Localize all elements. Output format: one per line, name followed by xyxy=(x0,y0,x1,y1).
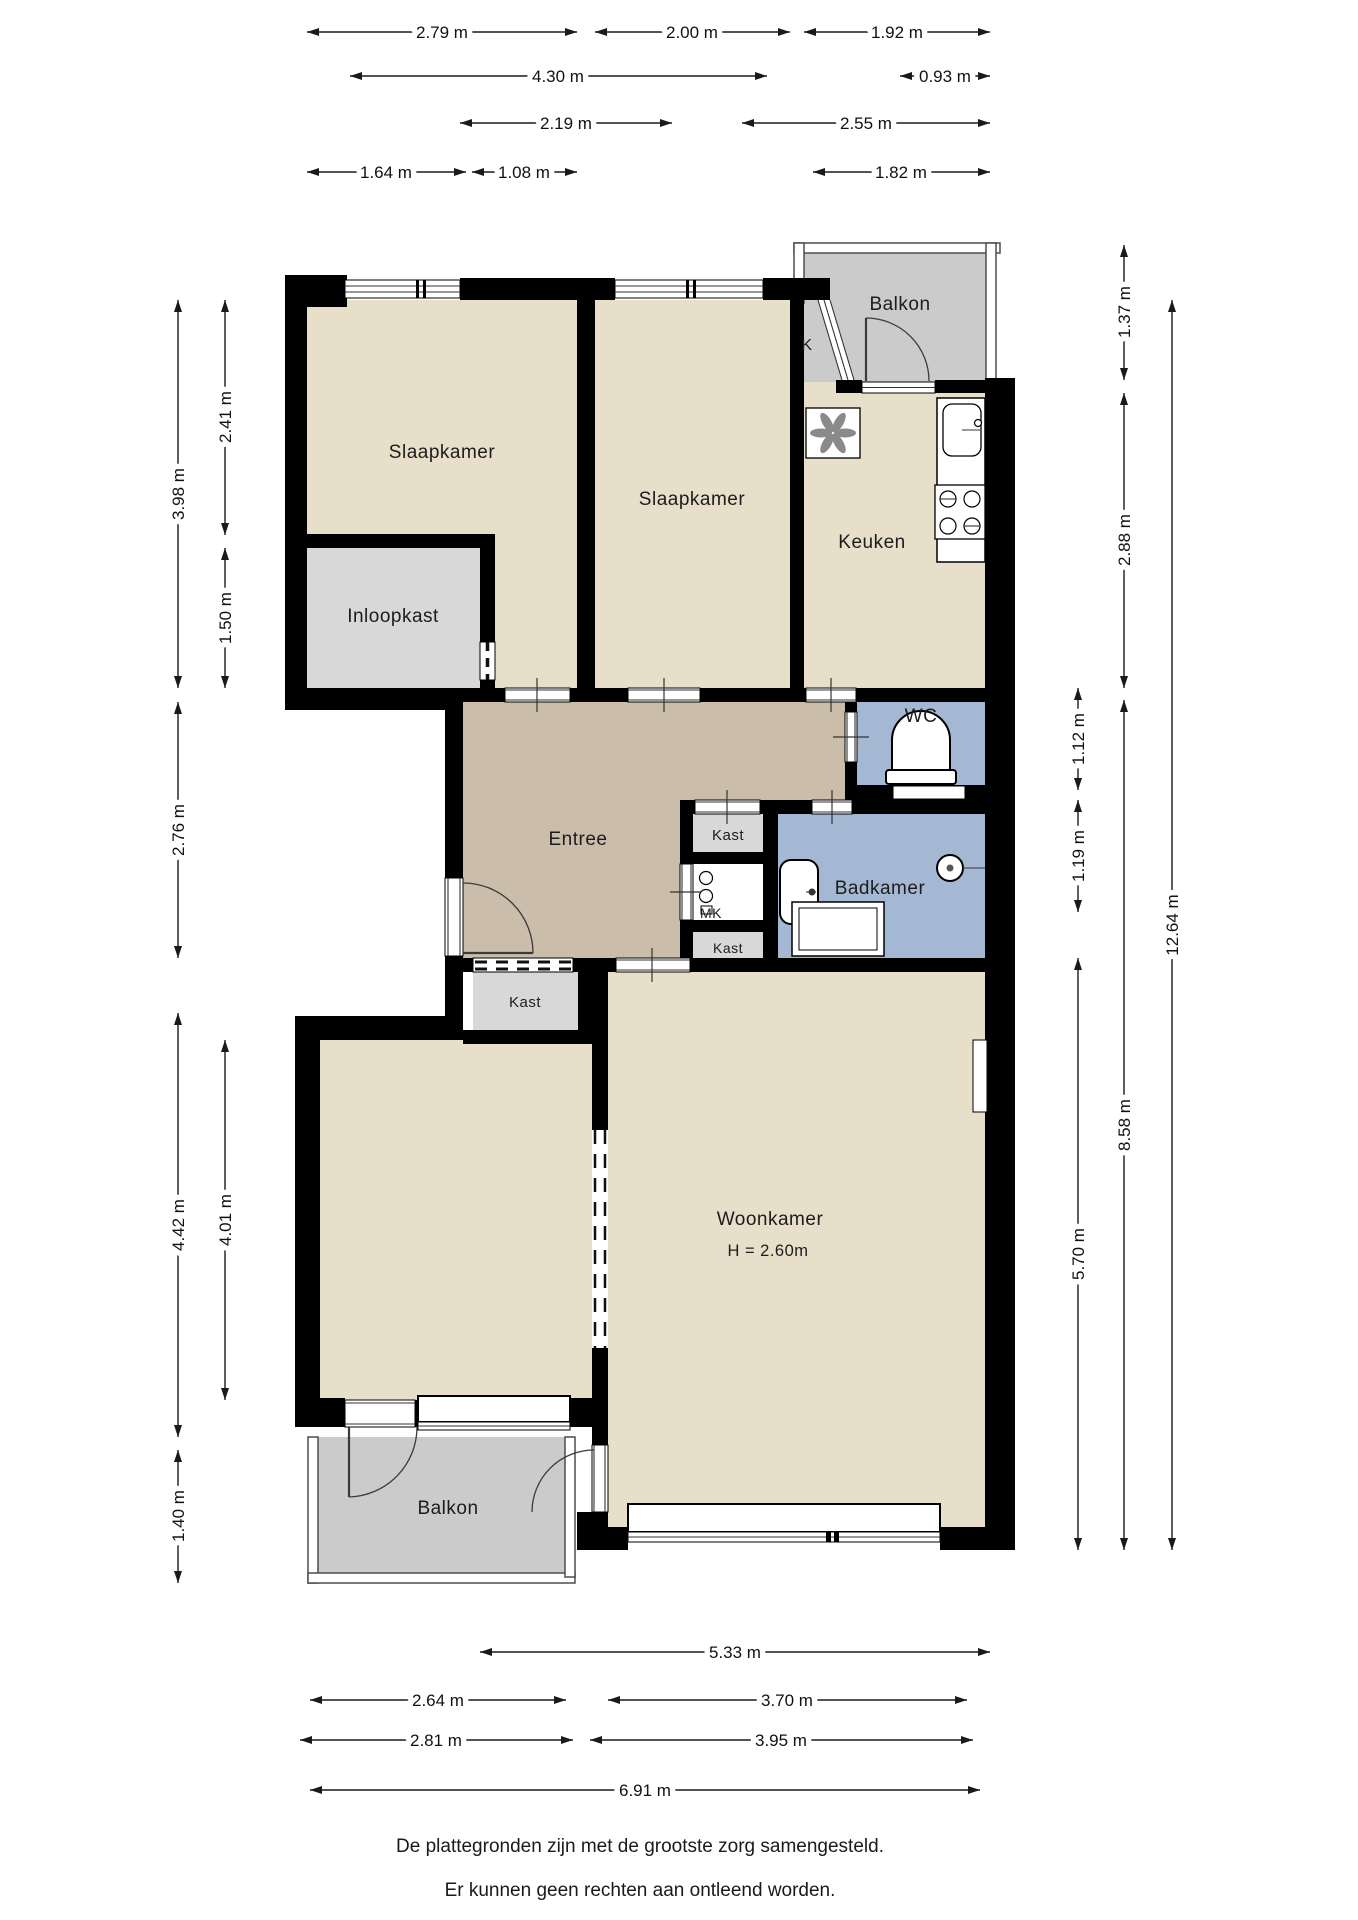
dim: 1.40 m xyxy=(169,1450,188,1583)
label-mk: MK xyxy=(700,905,722,921)
opening-kast-left xyxy=(473,958,573,972)
wall xyxy=(592,1348,608,1445)
label-badkamer: Badkamer xyxy=(835,878,926,899)
wall xyxy=(700,688,806,702)
balcony-wall xyxy=(308,1437,318,1583)
balcony-wall xyxy=(308,1573,575,1583)
svg-text:3.95 m: 3.95 m xyxy=(755,1731,807,1750)
svg-text:2.41 m: 2.41 m xyxy=(216,391,235,443)
svg-text:2.79 m: 2.79 m xyxy=(416,23,468,42)
balcony-wall xyxy=(794,243,1000,253)
svg-text:1.50 m: 1.50 m xyxy=(216,592,235,644)
balcony-wall xyxy=(986,243,996,393)
label-woonkamer: Woonkamer xyxy=(717,1209,824,1230)
dim: 1.08 m xyxy=(472,163,577,182)
room-sideroom xyxy=(320,1040,592,1400)
dim: 6.91 m xyxy=(310,1781,980,1800)
wall xyxy=(836,380,862,393)
svg-text:8.58 m: 8.58 m xyxy=(1115,1099,1134,1151)
window-balcony-top xyxy=(862,382,935,393)
label-slaapkamer2: Slaapkamer xyxy=(639,489,746,510)
dim: 1.19 m xyxy=(1069,800,1088,912)
wall-niche xyxy=(973,1040,987,1112)
dimensions-right: 1.37 m 2.88 m 1.12 m 1.19 m 8.58 m 5.70 … xyxy=(1069,245,1182,1550)
svg-text:1.82 m: 1.82 m xyxy=(875,163,927,182)
label-woonkamer-height: H = 2.60m xyxy=(727,1242,808,1260)
wall xyxy=(852,800,985,814)
wall xyxy=(608,958,616,972)
dim: 4.30 m xyxy=(350,67,767,86)
svg-text:2.55 m: 2.55 m xyxy=(840,114,892,133)
footer-line2: Er kunnen geen rechten aan ontleend word… xyxy=(445,1880,836,1901)
wall xyxy=(985,378,1015,1550)
dim: 5.70 m xyxy=(1069,958,1088,1550)
wall xyxy=(460,278,615,300)
opening-inloopkast xyxy=(480,642,495,680)
dimensions-top: 2.79 m 2.00 m 1.92 m 4.30 m 0.93 m 2.19 … xyxy=(307,23,990,182)
wall xyxy=(570,688,628,702)
svg-text:2.19 m: 2.19 m xyxy=(540,114,592,133)
dim: 12.64 m xyxy=(1163,300,1182,1550)
dim: 0.93 m xyxy=(900,67,990,86)
kitchen-counter xyxy=(935,398,985,562)
dim: 1.12 m xyxy=(1069,688,1088,790)
room-entree-b xyxy=(463,800,680,958)
stove xyxy=(935,485,985,539)
wall xyxy=(693,852,763,864)
svg-text:1.40 m: 1.40 m xyxy=(169,1490,188,1542)
svg-text:1.37 m: 1.37 m xyxy=(1115,286,1134,338)
wall xyxy=(763,800,778,958)
wall xyxy=(763,278,830,300)
wall xyxy=(845,702,857,712)
svg-text:4.01 m: 4.01 m xyxy=(216,1194,235,1246)
dim: 3.98 m xyxy=(169,300,188,688)
dim: 1.82 m xyxy=(813,163,990,182)
label-balkon-top: Balkon xyxy=(869,294,930,315)
svg-text:2.81 m: 2.81 m xyxy=(410,1731,462,1750)
dim: 1.64 m xyxy=(307,163,466,182)
wc-niche xyxy=(893,786,965,799)
window-slaapkamer1 xyxy=(345,280,460,298)
sink-tap xyxy=(975,420,982,427)
svg-text:1.64 m: 1.64 m xyxy=(360,163,412,182)
wall xyxy=(285,688,463,710)
footer: De plattegronden zijn met de grootste zo… xyxy=(396,1836,884,1901)
svg-text:2.64 m: 2.64 m xyxy=(412,1691,464,1710)
label-kast-bottom: Kast xyxy=(713,940,743,956)
room-entree-a xyxy=(463,702,845,800)
wall xyxy=(295,1398,345,1427)
label-entree: Entree xyxy=(549,829,608,850)
wall xyxy=(480,680,495,688)
label-kast-left: Kast xyxy=(509,994,541,1011)
label-slaapkamer1: Slaapkamer xyxy=(389,442,496,463)
wall xyxy=(680,800,695,814)
dim: 1.92 m xyxy=(804,23,990,42)
dim: 3.95 m xyxy=(590,1731,973,1750)
footer-line1: De plattegronden zijn met de grootste zo… xyxy=(396,1836,884,1857)
wall xyxy=(845,762,857,785)
wall xyxy=(295,1016,463,1040)
svg-text:3.70 m: 3.70 m xyxy=(761,1691,813,1710)
wall xyxy=(577,1527,628,1550)
label-balkon-bottom: Balkon xyxy=(417,1498,478,1519)
dim: 4.01 m xyxy=(216,1040,235,1400)
dim: 2.41 m xyxy=(216,300,235,535)
dim: 4.42 m xyxy=(169,1013,188,1437)
dimensions-bottom: 5.33 m 2.64 m 3.70 m 2.81 m 3.95 m 6.91 … xyxy=(300,1643,990,1800)
wall xyxy=(760,800,812,814)
svg-text:1.19 m: 1.19 m xyxy=(1069,830,1088,882)
wall xyxy=(693,920,763,932)
wall xyxy=(307,534,495,548)
wall xyxy=(295,1016,320,1427)
wall xyxy=(445,958,473,972)
svg-text:2.00 m: 2.00 m xyxy=(666,23,718,42)
window-sideroom xyxy=(418,1396,570,1430)
wall xyxy=(790,300,804,688)
floorplan-svg: Slaapkamer Slaapkamer Inloopkast Keuken … xyxy=(0,0,1358,1920)
dim: 2.19 m xyxy=(460,114,672,133)
svg-text:4.30 m: 4.30 m xyxy=(532,67,584,86)
wall xyxy=(480,548,495,642)
dim: 1.50 m xyxy=(216,548,235,688)
dimensions-left: 3.98 m 2.41 m 1.50 m 2.76 m 4.42 m 4.01 … xyxy=(169,300,235,1583)
dim: 2.64 m xyxy=(310,1691,566,1710)
dim: 2.00 m xyxy=(595,23,790,42)
wall xyxy=(680,920,693,958)
wall xyxy=(592,958,608,1130)
wall xyxy=(285,278,307,690)
wall xyxy=(940,1527,1015,1550)
svg-text:12.64 m: 12.64 m xyxy=(1163,894,1182,955)
label-kast-top: Kast xyxy=(712,827,744,844)
dim: 2.88 m xyxy=(1115,393,1134,688)
label-keuken: Keuken xyxy=(838,532,905,553)
dim: 5.33 m xyxy=(480,1643,990,1662)
svg-text:4.42 m: 4.42 m xyxy=(169,1199,188,1251)
extractor-fan xyxy=(806,408,860,458)
svg-text:0.93 m: 0.93 m xyxy=(919,67,971,86)
wall xyxy=(690,958,1015,972)
dim: 8.58 m xyxy=(1115,700,1134,1550)
svg-text:1.08 m: 1.08 m xyxy=(498,163,550,182)
opening-sideroom-woonkamer xyxy=(595,1130,605,1348)
wall xyxy=(577,300,595,688)
dim: 2.76 m xyxy=(169,702,188,958)
dim: 2.55 m xyxy=(742,114,990,133)
svg-text:1.12 m: 1.12 m xyxy=(1069,713,1088,765)
floorplan-page: Slaapkamer Slaapkamer Inloopkast Keuken … xyxy=(0,0,1358,1920)
window-woonkamer xyxy=(628,1504,940,1542)
wall xyxy=(935,380,988,393)
dim: 2.81 m xyxy=(300,1731,573,1750)
svg-text:1.92 m: 1.92 m xyxy=(871,23,923,42)
svg-text:2.88 m: 2.88 m xyxy=(1115,514,1134,566)
svg-text:5.33 m: 5.33 m xyxy=(709,1643,761,1662)
shower-tray xyxy=(792,902,884,956)
dim: 3.70 m xyxy=(608,1691,967,1710)
wall xyxy=(463,1030,608,1044)
label-inloopkast: Inloopkast xyxy=(347,606,439,627)
svg-text:2.76 m: 2.76 m xyxy=(169,804,188,856)
window-slaapkamer2 xyxy=(615,280,763,298)
svg-text:6.91 m: 6.91 m xyxy=(619,1781,671,1800)
svg-text:5.70 m: 5.70 m xyxy=(1069,1228,1088,1280)
label-k: K xyxy=(801,337,812,354)
dim: 1.37 m xyxy=(1115,245,1134,380)
wall xyxy=(445,702,463,878)
dim: 2.79 m xyxy=(307,23,577,42)
balcony-wall xyxy=(565,1437,575,1577)
wall xyxy=(463,688,505,702)
label-wc: WC xyxy=(905,706,938,727)
svg-text:3.98 m: 3.98 m xyxy=(169,468,188,520)
